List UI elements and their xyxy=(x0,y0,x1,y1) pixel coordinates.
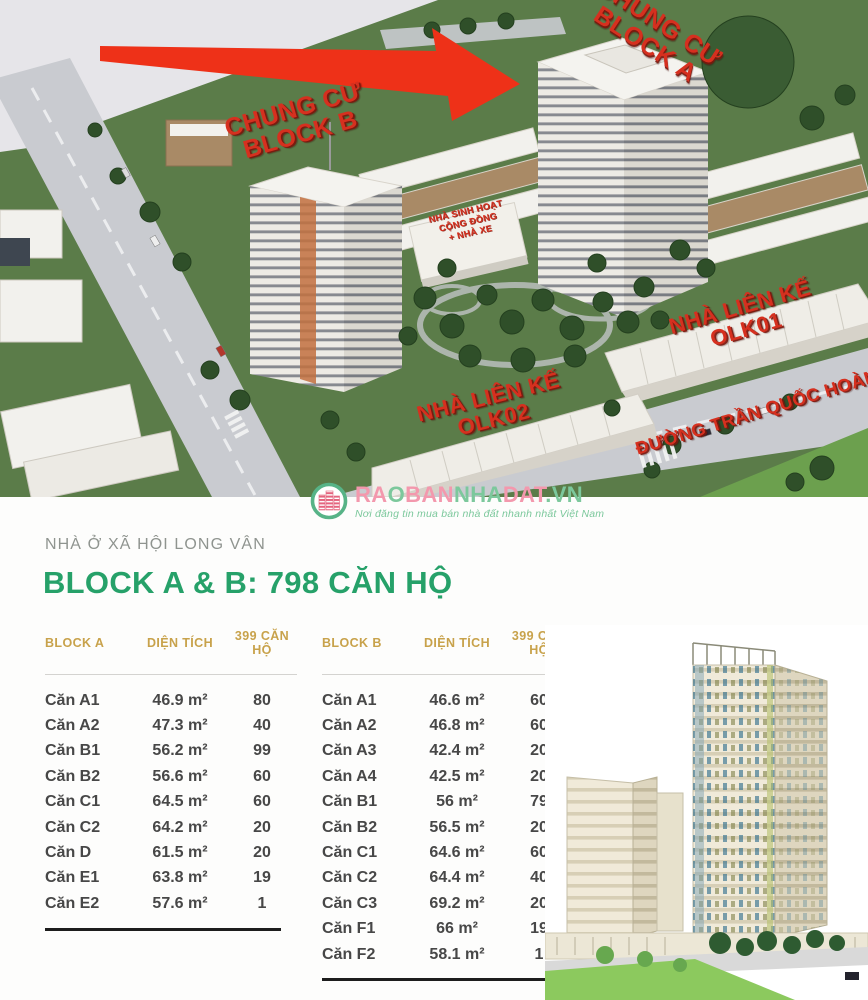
header-divider xyxy=(45,674,297,675)
unit-name: Căn B2 xyxy=(322,819,410,837)
unit-area: 56.6 m² xyxy=(133,768,227,786)
unit-count: 20 xyxy=(227,844,297,862)
render-main-tower xyxy=(693,665,827,937)
unit-name: Căn D xyxy=(45,844,133,862)
unit-name: Căn C1 xyxy=(45,793,133,811)
unit-count: 20 xyxy=(227,819,297,837)
unit-area: 56.5 m² xyxy=(410,819,504,837)
unit-count: 60 xyxy=(227,793,297,811)
table-row: Căn A1 46.6 m² 60 xyxy=(322,688,574,713)
unit-name: Căn A2 xyxy=(45,717,133,735)
header-divider xyxy=(322,674,574,675)
unit-count: 19 xyxy=(227,869,297,887)
brand-tagline: Nơi đăng tin mua bán nhà đất nhanh nhất … xyxy=(355,508,604,520)
unit-area: 42.5 m² xyxy=(410,768,504,786)
building-render xyxy=(545,625,868,1000)
table-row: Căn A1 46.9 m² 80 xyxy=(45,688,297,713)
unit-name: Căn F1 xyxy=(322,920,410,938)
table-block-a: BLOCK A DIỆN TÍCH 399 CĂN HỘ Căn A1 46.9… xyxy=(45,629,297,931)
table-row: Căn C1 64.5 m² 60 xyxy=(45,790,297,815)
render-second-tower xyxy=(567,777,683,937)
unit-area: 61.5 m² xyxy=(133,844,227,862)
unit-name: Căn A4 xyxy=(322,768,410,786)
brand-text: RAOBANNHADAT.VN xyxy=(355,482,604,507)
unit-name: Căn A1 xyxy=(322,692,410,710)
table-header: BLOCK B DIỆN TÍCH 399 CĂN HỘ xyxy=(322,629,574,657)
unit-area: 66 m² xyxy=(410,920,504,938)
logo-icon xyxy=(310,482,348,520)
table-row: Căn B1 56.2 m² 99 xyxy=(45,739,297,764)
table-block-b: BLOCK B DIỆN TÍCH 399 CĂN HỘ Căn A1 46.6… xyxy=(322,629,574,981)
table-row: Căn A3 42.4 m² 20 xyxy=(322,739,574,764)
table-body: Căn A1 46.6 m² 60 Căn A2 46.8 m² 60 Căn … xyxy=(322,688,574,967)
table-row: Căn A2 47.3 m² 40 xyxy=(45,713,297,738)
table-row: Căn A2 46.8 m² 60 xyxy=(322,713,574,738)
column-units: 399 CĂN HỘ xyxy=(227,629,297,657)
unit-area: 58.1 m² xyxy=(410,946,504,964)
unit-area: 46.9 m² xyxy=(133,692,227,710)
table-row: Căn C2 64.2 m² 20 xyxy=(45,815,297,840)
table-row: Căn C1 64.6 m² 60 xyxy=(322,840,574,865)
render-car xyxy=(845,972,859,980)
unit-name: Căn C3 xyxy=(322,895,410,913)
table-row: Căn A4 42.5 m² 20 xyxy=(322,764,574,789)
column-block: BLOCK B xyxy=(322,636,410,650)
unit-name: Căn F2 xyxy=(322,946,410,964)
unit-area: 69.2 m² xyxy=(410,895,504,913)
table-row: Căn B2 56.5 m² 20 xyxy=(322,815,574,840)
table-row: Căn C3 69.2 m² 20 xyxy=(322,891,574,916)
table-row: Căn E1 63.8 m² 19 xyxy=(45,866,297,891)
info-panel: RAOBANNHADAT.VN Nơi đăng tin mua bán nhà… xyxy=(0,497,868,1000)
unit-area: 57.6 m² xyxy=(133,895,227,913)
column-block: BLOCK A xyxy=(45,636,133,650)
unit-area: 56 m² xyxy=(410,793,504,811)
table-footer-rule xyxy=(45,928,281,931)
table-header: BLOCK A DIỆN TÍCH 399 CĂN HỘ xyxy=(45,629,297,657)
unit-area: 47.3 m² xyxy=(133,717,227,735)
table-row: Căn B1 56 m² 79 xyxy=(322,790,574,815)
unit-name: Căn B2 xyxy=(45,768,133,786)
unit-area: 56.2 m² xyxy=(133,742,227,760)
unit-count: 99 xyxy=(227,742,297,760)
table-row: Căn D 61.5 m² 20 xyxy=(45,840,297,865)
unit-count: 60 xyxy=(227,768,297,786)
unit-name: Căn C2 xyxy=(45,819,133,837)
unit-name: Căn C2 xyxy=(322,869,410,887)
column-area: DIỆN TÍCH xyxy=(133,636,227,650)
unit-area: 64.2 m² xyxy=(133,819,227,837)
flyer: CHUNG CƯ BLOCK A CHUNG CƯ BLOCK B NHÀ SI… xyxy=(0,0,868,1000)
unit-area: 64.4 m² xyxy=(410,869,504,887)
unit-name: Căn E2 xyxy=(45,895,133,913)
unit-area: 46.6 m² xyxy=(410,692,504,710)
unit-area: 63.8 m² xyxy=(133,869,227,887)
brand-logo: RAOBANNHADAT.VN Nơi đăng tin mua bán nhà… xyxy=(310,482,604,520)
unit-area: 64.6 m² xyxy=(410,844,504,862)
unit-area: 42.4 m² xyxy=(410,742,504,760)
table-footer-rule xyxy=(322,978,558,981)
table-body: Căn A1 46.9 m² 80 Căn A2 47.3 m² 40 Căn … xyxy=(45,688,297,917)
unit-name: Căn C1 xyxy=(322,844,410,862)
unit-name: Căn A3 xyxy=(322,742,410,760)
table-row: Căn F1 66 m² 19 xyxy=(322,917,574,942)
masterplan-render: CHUNG CƯ BLOCK A CHUNG CƯ BLOCK B NHÀ SI… xyxy=(0,0,868,497)
project-label: NHÀ Ở XÃ HỘI LONG VÂN xyxy=(45,536,266,554)
table-row: Căn C2 64.4 m² 40 xyxy=(322,866,574,891)
unit-area: 64.5 m² xyxy=(133,793,227,811)
unit-count: 40 xyxy=(227,717,297,735)
unit-name: Căn B1 xyxy=(322,793,410,811)
unit-name: Căn E1 xyxy=(45,869,133,887)
page-title: BLOCK A & B: 798 CĂN HỘ xyxy=(43,565,452,601)
table-row: Căn F2 58.1 m² 1 xyxy=(322,942,574,967)
unit-area: 46.8 m² xyxy=(410,717,504,735)
unit-name: Căn B1 xyxy=(45,742,133,760)
unit-count: 80 xyxy=(227,692,297,710)
unit-count: 1 xyxy=(227,895,297,913)
column-area: DIỆN TÍCH xyxy=(410,636,504,650)
table-row: Căn E2 57.6 m² 1 xyxy=(45,891,297,916)
unit-name: Căn A2 xyxy=(322,717,410,735)
table-row: Căn B2 56.6 m² 60 xyxy=(45,764,297,789)
unit-name: Căn A1 xyxy=(45,692,133,710)
